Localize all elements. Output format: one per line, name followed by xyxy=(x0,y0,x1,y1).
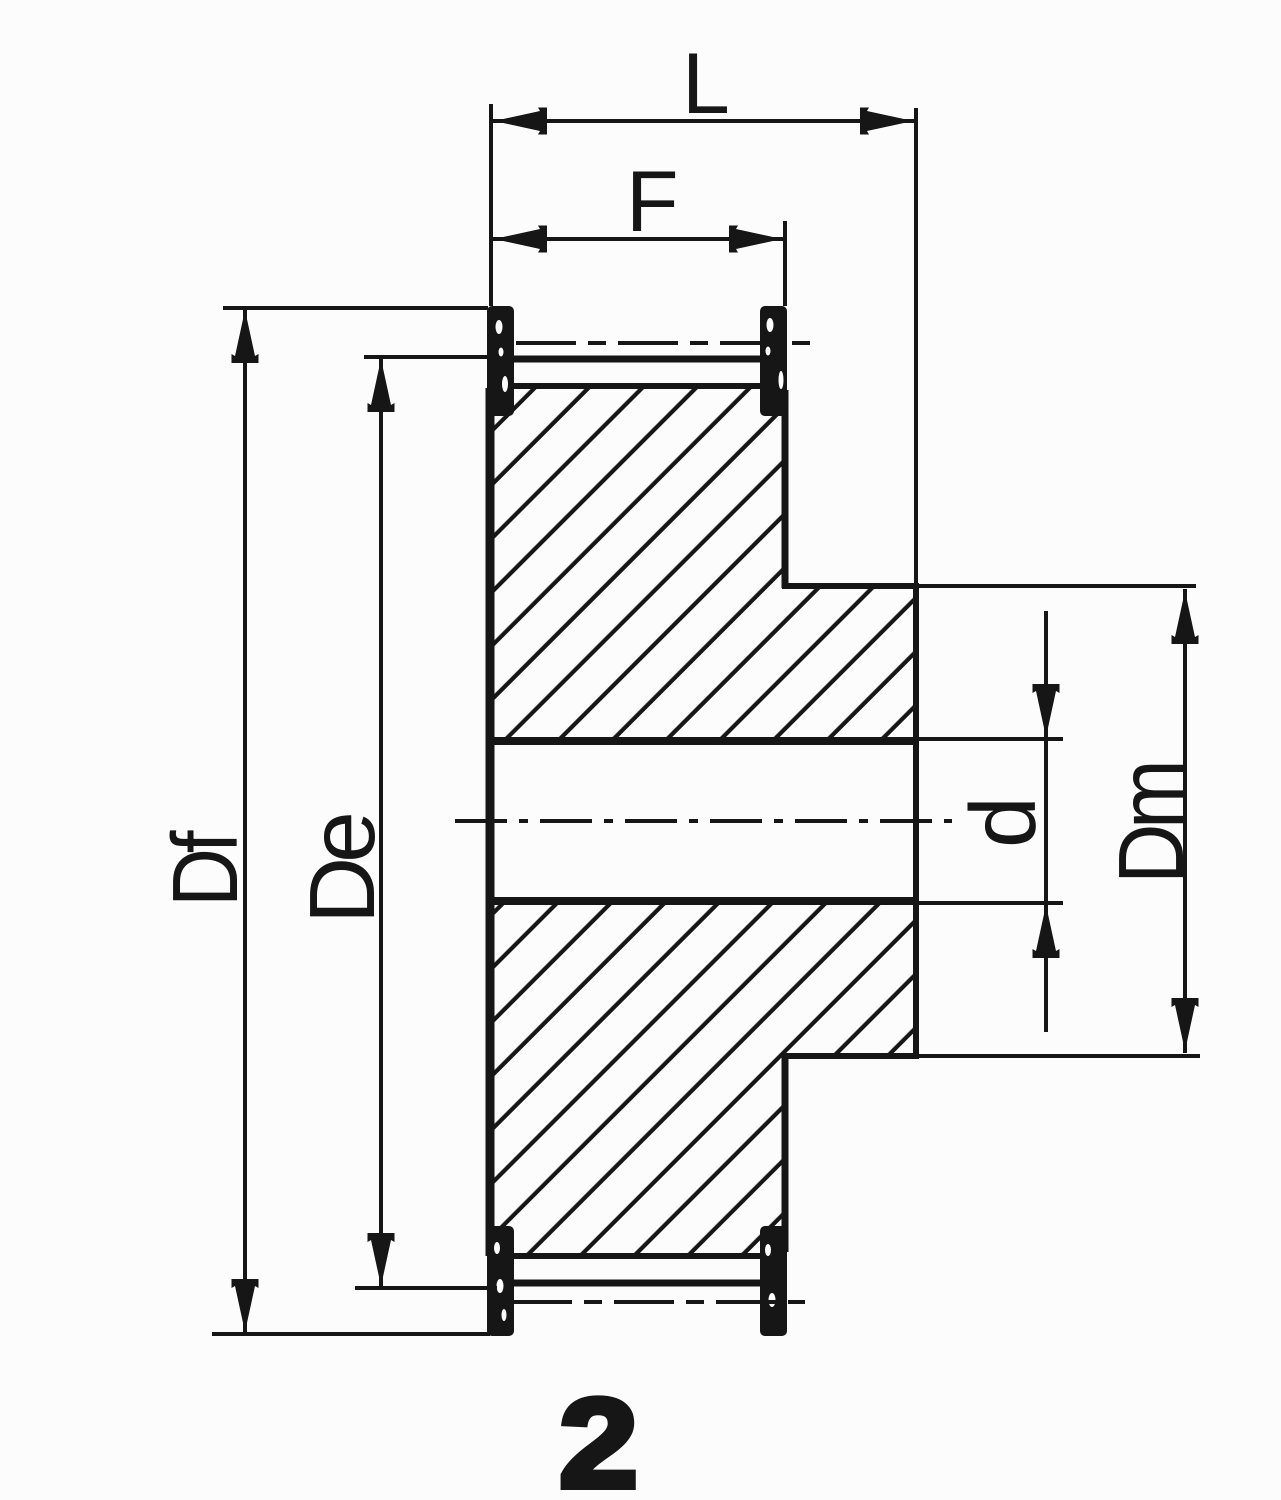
svg-text:2: 2 xyxy=(559,1372,638,1500)
svg-text:Dm: Dm xyxy=(1099,765,1203,884)
svg-text:De: De xyxy=(290,815,394,924)
svg-text:F: F xyxy=(626,154,679,250)
svg-text:Df: Df xyxy=(153,830,257,907)
svg-text:L: L xyxy=(682,36,730,132)
svg-text:d: d xyxy=(951,796,1055,848)
